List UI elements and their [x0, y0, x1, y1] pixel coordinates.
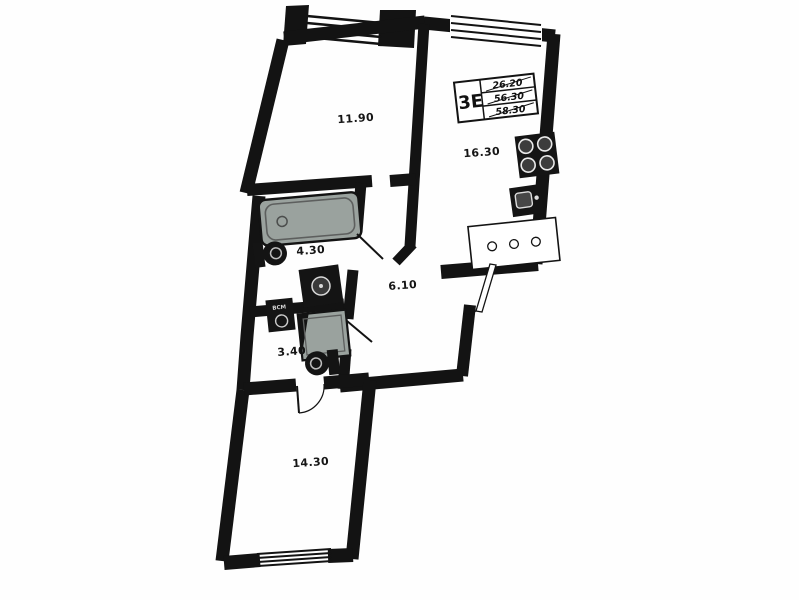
- wc-door-leaf: [347, 321, 372, 342]
- kitchen-sink-icon: [509, 184, 544, 217]
- roomA-bottom-wall: [247, 181, 372, 190]
- room2-top-wall-right: [324, 379, 369, 383]
- floor-plan-drawing: 3Е 26.20 56.30 58.30: [0, 0, 799, 600]
- layout-code: 3Е: [457, 91, 484, 115]
- left-wall-middle: [243, 196, 259, 390]
- hall-zigzag-stub: [396, 244, 413, 262]
- bottom-wall-right: [328, 555, 353, 556]
- room2-door-leaf: [297, 386, 299, 413]
- bathroom-door-leaf: [357, 234, 383, 259]
- room-label-wc: 3.40: [277, 344, 307, 359]
- bottom-window-icon: [257, 549, 332, 566]
- title-block: 3Е 26.20 56.30 58.30: [454, 74, 538, 123]
- kitchen-counter-icon: [468, 218, 560, 270]
- room2-door-arc: [299, 384, 324, 413]
- roomA-bottom-wall-2: [390, 179, 416, 181]
- bottom-wall-left: [224, 560, 260, 563]
- utility-riser: ВСМ: [265, 298, 295, 333]
- hall-right-wall: [462, 305, 470, 376]
- room2-right-wall: [352, 380, 370, 559]
- bathtub-icon: [258, 192, 362, 247]
- partition-roomA-kitchen: [410, 24, 424, 246]
- room-label-living-2: 14.30: [292, 455, 330, 471]
- kitchen-window-icon: [450, 13, 542, 46]
- room-label-bathroom: 4.30: [296, 243, 326, 258]
- bath-right-wall-lower: [348, 270, 353, 319]
- stove-icon: [515, 132, 560, 179]
- left-wall-lower: [222, 390, 243, 561]
- room-label-kitchen: 16.30: [463, 145, 501, 161]
- washbasin-icon: [299, 264, 344, 307]
- floor-plan-page: 3Е 26.20 56.30 58.30: [0, 0, 799, 600]
- room-label-living-1: 11.90: [337, 111, 375, 127]
- room-label-hallway: 6.10: [388, 278, 418, 293]
- room2-top-wall-left: [244, 385, 296, 389]
- left-wall-upper: [246, 40, 283, 193]
